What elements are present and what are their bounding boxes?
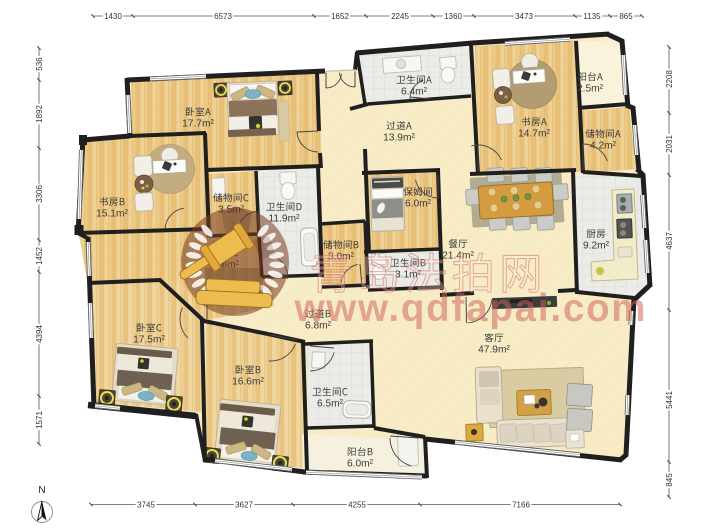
svg-text:11.9m²: 11.9m² (269, 214, 301, 225)
svg-text:16.6m²: 16.6m² (232, 377, 264, 388)
svg-text:4.2m²: 4.2m² (590, 141, 617, 152)
svg-text:2245: 2245 (391, 12, 409, 21)
svg-text:1430: 1430 (104, 12, 122, 21)
svg-text:536: 536 (35, 57, 44, 71)
svg-text:9.2m²: 9.2m² (583, 241, 610, 252)
svg-text:2208: 2208 (665, 70, 674, 88)
svg-text:13.9m²: 13.9m² (383, 133, 415, 144)
svg-text:5441: 5441 (665, 391, 674, 409)
svg-text:7166: 7166 (512, 500, 530, 509)
svg-text:2031: 2031 (665, 135, 674, 153)
svg-text:15.1m²: 15.1m² (96, 209, 128, 220)
svg-text:4255: 4255 (348, 500, 366, 509)
svg-text:1892: 1892 (35, 105, 44, 123)
svg-text:17.5m²: 17.5m² (133, 335, 165, 346)
svg-text:6.4m²: 6.4m² (401, 87, 428, 98)
svg-text:1452: 1452 (35, 247, 44, 265)
svg-text:865: 865 (619, 12, 633, 21)
svg-text:2.5m²: 2.5m² (577, 84, 604, 95)
svg-text:1360: 1360 (444, 12, 462, 21)
svg-text:845: 845 (665, 473, 674, 487)
svg-text:3627: 3627 (235, 500, 253, 509)
svg-text:17.7m²: 17.7m² (182, 119, 214, 130)
svg-text:6.0m²: 6.0m² (347, 459, 374, 470)
svg-text:4394: 4394 (35, 325, 44, 343)
svg-text:1652: 1652 (331, 12, 349, 21)
svg-text:21.4m²: 21.4m² (442, 251, 474, 262)
svg-text:N: N (38, 485, 45, 496)
svg-text:3473: 3473 (515, 12, 533, 21)
svg-text:3306: 3306 (35, 185, 44, 203)
svg-text:47.9m²: 47.9m² (478, 345, 510, 356)
svg-text:14.7m²: 14.7m² (518, 129, 550, 140)
svg-text:6573: 6573 (214, 12, 232, 21)
svg-text:1135: 1135 (583, 12, 601, 21)
svg-text:www.qdfapai.com: www.qdfapai.com (294, 287, 648, 330)
svg-text:6.0m²: 6.0m² (405, 199, 432, 210)
svg-text:4637: 4637 (665, 232, 674, 250)
svg-text:1571: 1571 (35, 411, 44, 429)
svg-text:3745: 3745 (137, 500, 155, 509)
svg-text:6.5m²: 6.5m² (317, 399, 344, 410)
